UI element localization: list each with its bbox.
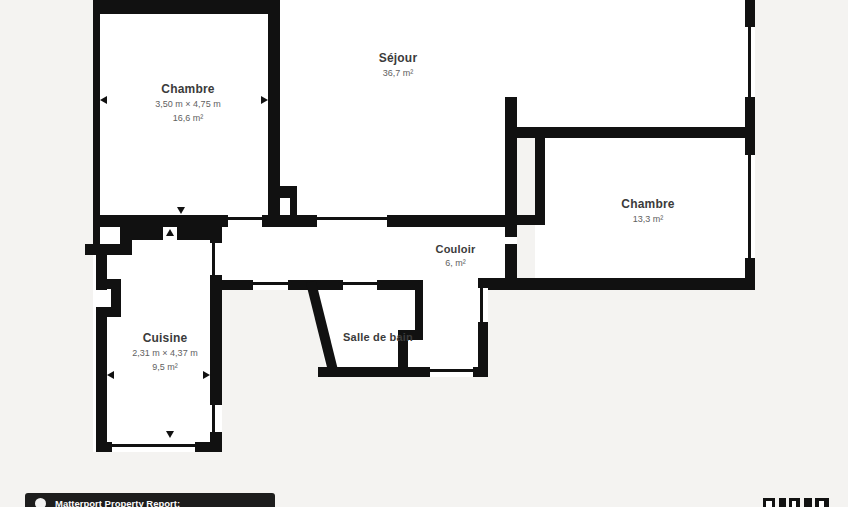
wall — [510, 127, 750, 138]
door-line — [317, 217, 387, 220]
room-area: 9,5 m² — [105, 361, 225, 373]
window-line — [748, 155, 751, 258]
wall — [478, 278, 755, 290]
door-line — [212, 243, 215, 275]
wall — [505, 227, 517, 282]
room-label-salle-de-bain: Salle de bain — [328, 331, 428, 343]
wall — [415, 282, 423, 333]
room-area: 6, m² — [408, 257, 503, 269]
room-label-sejour: Séjour 36,7 m² — [338, 51, 458, 79]
wall — [505, 97, 517, 227]
wall — [268, 215, 517, 227]
wall — [93, 0, 273, 14]
room-area: 13,3 m² — [588, 213, 708, 225]
room-name: Couloir — [408, 243, 503, 255]
room-name: Cuisine — [105, 331, 225, 345]
room-dimensions: 2,31 m × 4,37 m — [105, 347, 225, 359]
door-line — [343, 282, 377, 285]
room-dimensions: 3,50 m × 4,75 m — [118, 98, 258, 110]
wall — [318, 367, 408, 377]
window-line — [112, 444, 195, 447]
room-label-couloir: Couloir 6, m² — [408, 243, 503, 269]
measure-arrow-down-icon — [177, 207, 185, 214]
measure-arrow-right-icon — [261, 96, 268, 104]
measure-arrow-down-icon — [166, 431, 174, 438]
door-line — [480, 288, 483, 322]
wall — [96, 307, 107, 452]
footer-bar: Matterport Property Report: — [25, 493, 275, 507]
door-line — [228, 217, 262, 220]
room-label-chambre-left: Chambre 3,50 m × 4,75 m 16,6 m² — [118, 82, 258, 124]
wall — [535, 138, 545, 223]
wall — [177, 227, 212, 240]
window-line — [430, 369, 473, 372]
floor-plan: Chambre 3,50 m × 4,75 m 16,6 m² Séjour 3… — [0, 0, 848, 507]
room-name: Chambre — [588, 197, 708, 211]
room-label-cuisine: Cuisine 2,31 m × 4,37 m 9,5 m² — [105, 331, 225, 373]
room-name: Séjour — [338, 51, 458, 65]
door-line — [253, 282, 288, 285]
door-opening — [505, 237, 517, 244]
room-label-chambre-right: Chambre 13,3 m² — [588, 197, 708, 225]
wall — [505, 215, 545, 225]
room-fill-sejour — [268, 0, 517, 227]
room-area: 16,6 m² — [118, 112, 258, 124]
room-area: 36,7 m² — [338, 67, 458, 79]
measure-arrow-up-icon — [166, 229, 174, 236]
wall — [290, 186, 297, 217]
window-line — [748, 27, 751, 97]
measure-arrow-left-icon — [100, 96, 107, 104]
wall — [85, 244, 132, 255]
room-fill-sejour-ext — [505, 0, 755, 138]
room-name: Salle de bain — [328, 331, 428, 343]
footer-title: Matterport Property Report: — [55, 498, 180, 507]
corner-partial-logo — [763, 498, 831, 507]
matterport-logo-icon — [35, 498, 46, 507]
door-line — [212, 405, 215, 432]
room-name: Chambre — [118, 82, 258, 96]
